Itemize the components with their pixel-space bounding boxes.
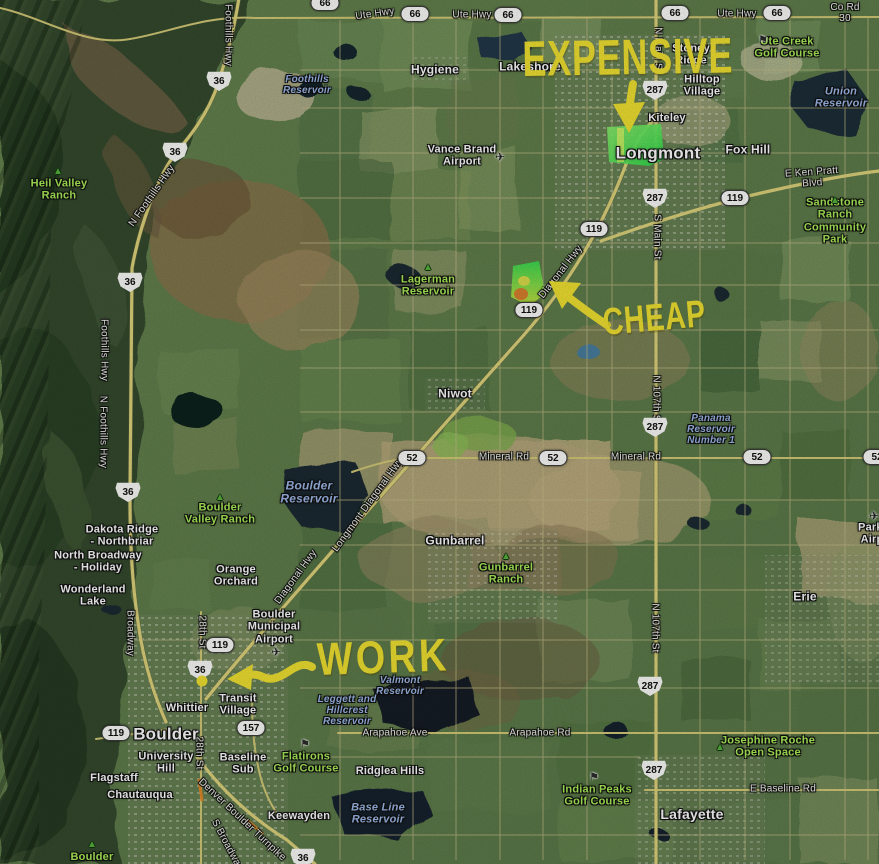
work-arrowhead-icon — [227, 664, 253, 690]
annotation-work: WORK — [316, 627, 450, 686]
annotation-expensive: EXPENSIVE — [522, 26, 734, 88]
expensive-arrowhead-icon — [613, 102, 645, 133]
annotation-cheap: CHEAP — [601, 293, 708, 345]
map-canvas[interactable]: Foothills HwyUte HwyUte HwyUte HwyCo Rd … — [0, 0, 879, 864]
work-location-dot — [197, 676, 208, 687]
work-arrow-icon — [243, 665, 312, 679]
annotation-drawings — [0, 0, 879, 864]
